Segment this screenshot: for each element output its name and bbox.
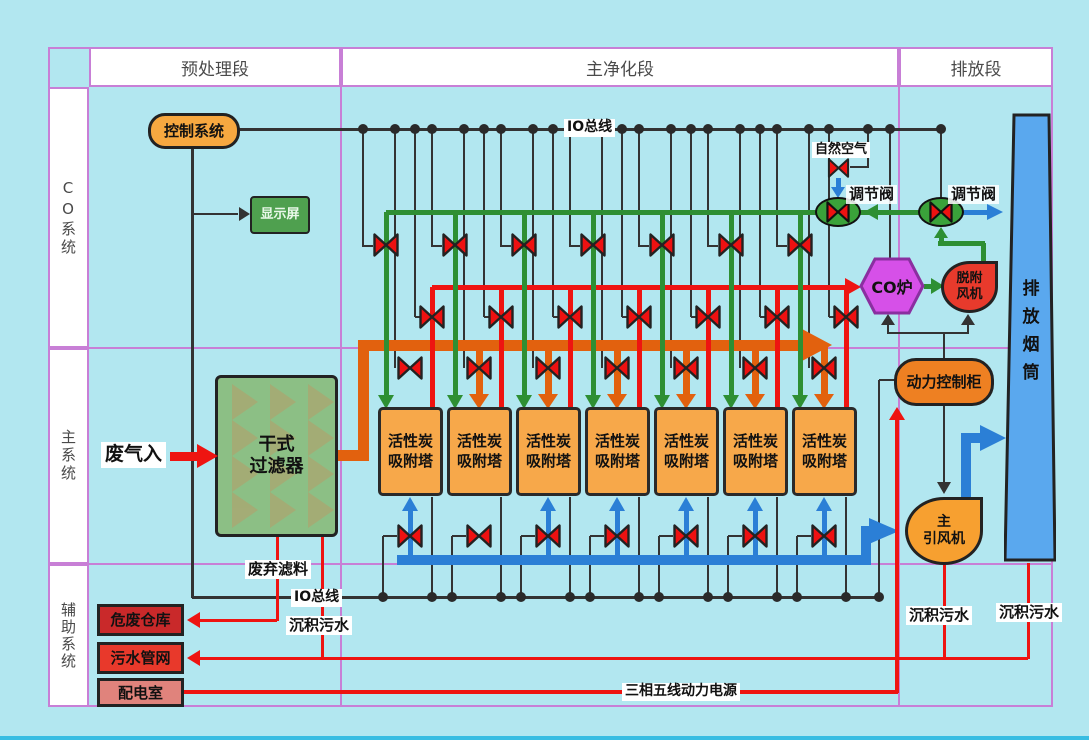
- waste-media-line: [199, 619, 277, 622]
- bus-junction-dot: [585, 592, 595, 602]
- bus-junction-dot: [496, 592, 506, 602]
- pipe-segment: [363, 245, 373, 247]
- pipe-segment: [659, 535, 673, 537]
- waste-gas-in-arrow-icon: [197, 444, 218, 468]
- blue-arrow-icon: [402, 497, 418, 511]
- adsorption-tower: 活性炭吸附塔: [378, 407, 443, 496]
- orange-pipe: [358, 345, 369, 461]
- green-line-valve-icon: [511, 233, 537, 257]
- bus-junction-dot: [528, 124, 538, 134]
- bus-junction-dot: [755, 124, 765, 134]
- green-arrow-icon: [864, 204, 878, 220]
- bus-junction-dot: [479, 124, 489, 134]
- bus-junction-dot: [496, 124, 506, 134]
- tower-control-riser: [776, 497, 778, 597]
- red-line-valve-icon: [488, 305, 514, 329]
- adsorption-tower-label-1: 活性炭: [664, 432, 709, 452]
- green-line: [939, 238, 944, 246]
- desorption-fan: 脱附 风机: [941, 261, 998, 313]
- bus-junction-dot: [792, 592, 802, 602]
- blue-arrow-icon: [540, 497, 556, 511]
- pipe-segment: [570, 245, 580, 247]
- blue-line-valve-icon: [397, 524, 423, 548]
- orange-line-valve-icon: [466, 356, 492, 380]
- sediment-sewage-fan-text: 沉积污水: [909, 606, 969, 624]
- blue-pipe: [961, 433, 982, 443]
- pipe-segment: [887, 324, 889, 334]
- orange-line-valve-icon: [397, 356, 423, 380]
- blue-line-valve-icon: [811, 524, 837, 548]
- sediment-sewage-fan-label: 沉积污水: [906, 606, 972, 625]
- desorption-fan-label-1: 脱附: [956, 271, 982, 287]
- orange-line-valve-icon: [742, 356, 768, 380]
- sediment-sewage-stack-label: 沉积污水: [996, 603, 1062, 622]
- control-system-riser: [191, 148, 194, 598]
- valve-control-drop: [500, 129, 502, 247]
- adsorption-tower: 活性炭吸附塔: [585, 407, 650, 496]
- hazardous-waste-warehouse: 危废仓库: [97, 604, 184, 636]
- bus-junction-dot: [459, 124, 469, 134]
- bus-junction-dot: [617, 124, 627, 134]
- orange-pipe: [358, 340, 802, 351]
- dry-filter-label-1: 干式: [259, 434, 295, 456]
- waste-gas-in-line: [170, 452, 199, 461]
- tower-control-riser: [569, 497, 571, 597]
- bus-junction-dot: [772, 592, 782, 602]
- sediment-sewage-filter-text: 沉积污水: [289, 616, 349, 634]
- red-line-valve-icon: [419, 305, 445, 329]
- cabinet-split-riser: [943, 333, 945, 359]
- waste-filter-media-text: 废弃滤料: [248, 560, 308, 578]
- blue-line-valve-icon: [604, 524, 630, 548]
- co-furnace: CO炉: [858, 256, 926, 316]
- io-bus-bottom-label: IO总线: [291, 589, 342, 607]
- process-flow-diagram: 预处理段 主净化段 排放段 CO系统 主系统 辅助系统 排放烟筒 干式 过滤器 …: [0, 0, 1089, 740]
- regvalve-stack-arrow-icon: [987, 204, 1003, 220]
- adsorption-tower-label-1: 活性炭: [733, 432, 778, 452]
- bus-junction-dot: [634, 124, 644, 134]
- valve-control-drop: [727, 536, 729, 597]
- valve-control-drop: [451, 536, 453, 597]
- pipe-segment: [452, 535, 466, 537]
- regulating-valve-left-label: 调节阀: [846, 185, 897, 204]
- display-screen-label: 显示屏: [260, 207, 299, 223]
- tower-control-riser: [500, 497, 502, 597]
- adsorption-tower: 活性炭吸附塔: [723, 407, 788, 496]
- green-line-valve-icon: [580, 233, 606, 257]
- adsorption-tower-label-2: 吸附塔: [664, 452, 709, 472]
- display-screen-box: 显示屏: [250, 196, 310, 234]
- green-line-valve-icon: [373, 233, 399, 257]
- io-bus-top-text: IO总线: [567, 119, 612, 135]
- pipe-segment: [590, 535, 604, 537]
- orange-line-valve-icon: [604, 356, 630, 380]
- pipe-segment: [521, 535, 535, 537]
- adsorption-tower-label-1: 活性炭: [802, 432, 847, 452]
- valve-control-drop: [776, 129, 778, 247]
- valve-control-drop: [431, 129, 433, 247]
- power-line: [895, 419, 899, 693]
- valve-control-drop: [589, 536, 591, 597]
- pipe-segment: [967, 324, 969, 334]
- cabinet-bus-riser: [878, 380, 880, 597]
- control-system-box: 控制系统: [148, 113, 240, 149]
- desorption-fan-label-2: 风机: [956, 287, 982, 303]
- regulating-valve-right-text: 调节阀: [951, 185, 996, 203]
- bus-junction-dot: [666, 124, 676, 134]
- bottom-window-strip: [0, 736, 1089, 740]
- green-line-valve-icon: [442, 233, 468, 257]
- bus-junction-dot: [447, 592, 457, 602]
- blue-arrow-icon: [816, 497, 832, 511]
- bus-junction-dot: [686, 124, 696, 134]
- sewage-main-line: [199, 657, 1028, 660]
- bus-junction-dot: [863, 124, 873, 134]
- sewage-pipe-network: 污水管网: [97, 642, 184, 674]
- bus-junction-dot: [703, 124, 713, 134]
- adsorption-tower-label-2: 吸附塔: [457, 452, 502, 472]
- green-line-valve-icon: [649, 233, 675, 257]
- blue-pipe: [961, 438, 971, 500]
- adsorption-tower-label-2: 吸附塔: [595, 452, 640, 472]
- main-fan-label-2: 引风机: [923, 531, 965, 548]
- hazardous-waste-warehouse-label: 危废仓库: [110, 611, 170, 629]
- bus-junction-dot: [548, 124, 558, 134]
- green-line-valve-icon: [787, 233, 813, 257]
- bus-junction-dot: [723, 592, 733, 602]
- control-system-label: 控制系统: [164, 122, 224, 140]
- bus-junction-dot: [703, 592, 713, 602]
- power-arrow-icon: [889, 407, 905, 420]
- red-line-valve-icon: [695, 305, 721, 329]
- red-arrow-icon: [187, 612, 200, 628]
- bus-junction-dot: [735, 124, 745, 134]
- power-distribution-room-label: 配电室: [118, 684, 163, 702]
- three-phase-power-text: 三相五线动力电源: [625, 683, 737, 699]
- co-furnace-label: CO炉: [871, 274, 912, 298]
- bus-junction-dot: [390, 124, 400, 134]
- pipe-segment: [501, 245, 511, 247]
- blue-stack-arrow-icon: [980, 425, 1006, 451]
- pipe-segment: [777, 245, 787, 247]
- blue-line-valve-icon: [742, 524, 768, 548]
- waste-media-line: [276, 537, 279, 621]
- bus-junction-dot: [358, 124, 368, 134]
- blue-line-valve-icon: [673, 524, 699, 548]
- bus-junction-dot: [885, 124, 895, 134]
- three-phase-power-label: 三相五线动力电源: [622, 683, 740, 701]
- valve-control-drop: [362, 129, 364, 247]
- natural-air-valve-icon: [827, 158, 850, 178]
- bus-junction-dot: [427, 592, 437, 602]
- adsorption-tower-label-2: 吸附塔: [802, 452, 847, 472]
- natural-air-label: 自然空气: [812, 142, 870, 158]
- adsorption-tower: 活性炭吸附塔: [792, 407, 857, 496]
- bus-junction-dot: [565, 592, 575, 602]
- tower-control-riser: [431, 497, 433, 597]
- main-fan-label-1: 主: [937, 514, 951, 531]
- valve-control-drop: [414, 129, 416, 317]
- regvalve-right-control-riser: [940, 129, 942, 198]
- blue-arrow-icon: [747, 497, 763, 511]
- waste-gas-in-label: 废气入: [101, 442, 166, 468]
- valve-control-drop: [658, 536, 660, 597]
- sewage-pipe-network-label: 污水管网: [110, 649, 170, 667]
- adsorption-tower-label-1: 活性炭: [457, 432, 502, 452]
- valve-control-drop: [382, 536, 384, 597]
- power-control-cabinet: 动力控制柜: [894, 358, 994, 406]
- bus-junction-dot: [516, 592, 526, 602]
- main-fan: 主 引风机: [905, 497, 983, 565]
- bus-junction-dot: [378, 592, 388, 602]
- waste-gas-in-text: 废气入: [105, 443, 162, 465]
- adsorption-tower-label-2: 吸附塔: [388, 452, 433, 472]
- cabinet-fan-arrow-icon: [937, 482, 951, 494]
- regulating-valve-left-text: 调节阀: [849, 185, 894, 203]
- adsorption-tower: 活性炭吸附塔: [447, 407, 512, 496]
- bus-junction-dot: [824, 124, 834, 134]
- sediment-sewage-filter-label: 沉积污水: [286, 616, 352, 635]
- adsorption-tower-label-1: 活性炭: [388, 432, 433, 452]
- red-line-valve-icon: [626, 305, 652, 329]
- bus-junction-dot: [427, 124, 437, 134]
- adsorption-tower-label-1: 活性炭: [595, 432, 640, 452]
- adsorption-tower-label-2: 吸附塔: [733, 452, 778, 472]
- valve-control-drop: [707, 129, 709, 247]
- io-bus-top-label: IO总线: [564, 119, 615, 137]
- red-line-valve-icon: [833, 305, 859, 329]
- cabinet-split-line: [888, 332, 969, 334]
- blue-line: [963, 210, 989, 215]
- red-line-valve-icon: [764, 305, 790, 329]
- desorption-fan-power-arrow-icon: [961, 314, 975, 325]
- green-line-valve-icon: [718, 233, 744, 257]
- valve-control-drop: [569, 129, 571, 247]
- red-arrow-icon: [187, 650, 200, 666]
- valve-control-drop: [520, 536, 522, 597]
- bus-junction-dot: [841, 592, 851, 602]
- blue-line-valve-icon: [535, 524, 561, 548]
- tower-control-riser: [845, 497, 847, 597]
- bus-junction-dot: [874, 592, 884, 602]
- pipe-segment: [797, 535, 811, 537]
- orange-line-valve-icon: [535, 356, 561, 380]
- green-line: [938, 241, 985, 246]
- bus-junction-dot: [410, 124, 420, 134]
- pipe-segment: [432, 245, 442, 247]
- green-arrow-icon: [934, 227, 948, 238]
- bus-junction-dot: [804, 124, 814, 134]
- bus-junction-dot: [634, 592, 644, 602]
- dry-filter-label-2: 过滤器: [250, 456, 304, 478]
- power-line: [184, 690, 898, 694]
- adsorption-tower-label-1: 活性炭: [526, 432, 571, 452]
- orange-line-valve-icon: [811, 356, 837, 380]
- adsorption-tower-label-2: 吸附塔: [526, 452, 571, 472]
- blue-arrow-icon: [678, 497, 694, 511]
- regulating-valve-right-label: 调节阀: [948, 185, 999, 204]
- pipe-segment: [708, 245, 718, 247]
- tower-control-riser: [707, 497, 709, 597]
- blue-arrow-icon: [609, 497, 625, 511]
- bus-junction-dot: [654, 592, 664, 602]
- cabinet-bus-link: [879, 379, 895, 381]
- blue-pipe: [397, 555, 871, 565]
- sediment-sewage-stack-text: 沉积污水: [999, 603, 1059, 621]
- red-line-valve-icon: [557, 305, 583, 329]
- bus-junction-dot: [772, 124, 782, 134]
- adsorption-tower: 活性炭吸附塔: [516, 407, 581, 496]
- valve-control-drop: [638, 129, 640, 247]
- display-arrow-icon: [239, 207, 250, 221]
- pipe-segment: [383, 535, 397, 537]
- adsorption-tower: 活性炭吸附塔: [654, 407, 719, 496]
- blue-line-valve-icon: [466, 524, 492, 548]
- natural-air-text: 自然空气: [815, 142, 867, 157]
- pipe-segment: [728, 535, 742, 537]
- pipe-segment: [639, 245, 649, 247]
- tower-control-riser: [638, 497, 640, 597]
- power-control-cabinet-label: 动力控制柜: [906, 373, 981, 391]
- green-line: [878, 210, 919, 215]
- power-distribution-room: 配电室: [97, 678, 184, 707]
- display-branch: [192, 213, 238, 215]
- cabinet-to-fan-line: [943, 406, 945, 486]
- valve-control-drop: [796, 536, 798, 597]
- orange-line-valve-icon: [673, 356, 699, 380]
- io-bus-bottom-text: IO总线: [294, 589, 339, 605]
- waste-filter-media-label: 废弃滤料: [245, 560, 311, 579]
- bus-junction-dot: [936, 124, 946, 134]
